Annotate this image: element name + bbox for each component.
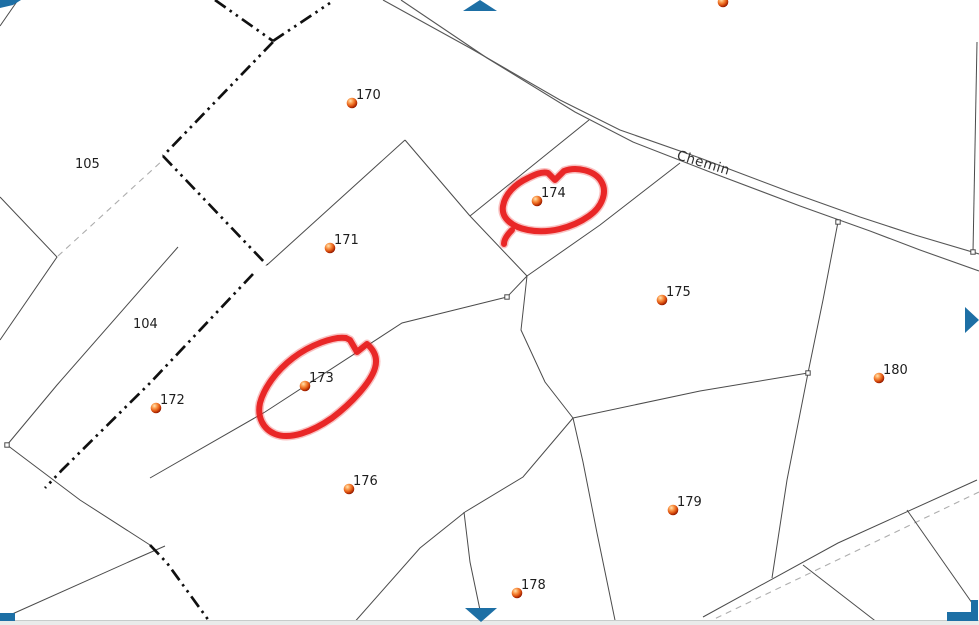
parcel-number-label: 170: [356, 88, 381, 103]
vertex-marker: [971, 250, 975, 254]
parcel-number-label: 180: [883, 363, 908, 378]
vertex-marker: [5, 443, 9, 447]
parcel-number-label: 174: [541, 186, 566, 201]
area-number-label: 105: [75, 157, 100, 172]
vertex-marker: [836, 220, 840, 224]
parcel-number-label: 171: [334, 233, 359, 248]
parcel-number-label: 173: [309, 371, 334, 386]
parcel-number-label: 172: [160, 393, 185, 408]
pan-down-left-icon: [0, 613, 15, 621]
map-canvas[interactable]: 170171172173174175176178179180105104Chem…: [0, 0, 979, 625]
parcel-number-label: 179: [677, 495, 702, 510]
map-background: [0, 0, 979, 625]
parcel-number-label: 176: [353, 474, 378, 489]
map-viewport: 170171172173174175176178179180105104Chem…: [0, 0, 979, 625]
parcel-number-label: 175: [666, 285, 691, 300]
pan-down-left-button[interactable]: [0, 613, 15, 621]
area-number-label: 104: [133, 317, 158, 332]
vertex-marker: [505, 295, 509, 299]
vertex-marker: [806, 371, 810, 375]
parcel-number-label: 178: [521, 578, 546, 593]
